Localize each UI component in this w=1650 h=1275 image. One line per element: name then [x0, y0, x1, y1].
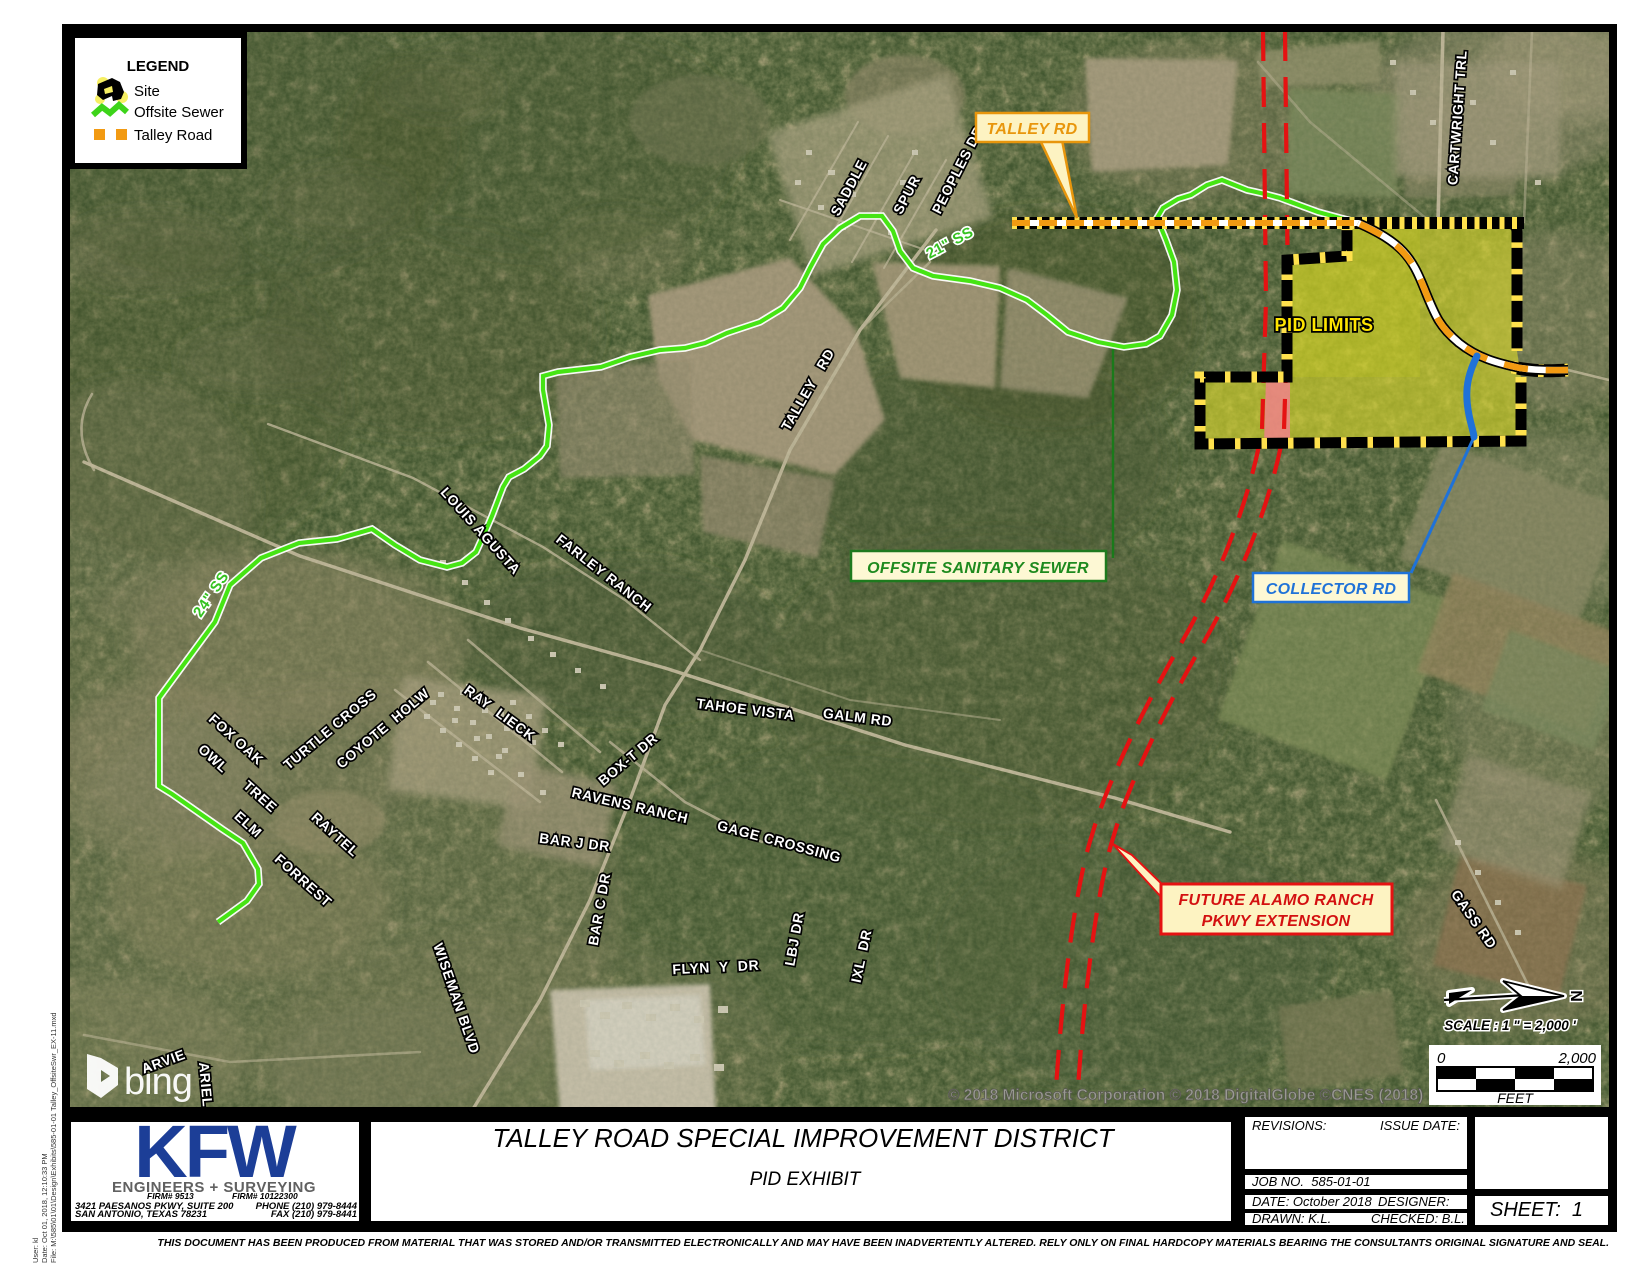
svg-text:FUTURE ALAMO RANCH: FUTURE ALAMO RANCH	[1178, 892, 1373, 909]
svg-text:TALLEY ROAD SPECIAL IMPROVEMEN: TALLEY ROAD SPECIAL IMPROVEMENT DISTRICT	[492, 1123, 1115, 1153]
svg-text:TALLEY RD: TALLEY RD	[987, 121, 1078, 138]
svg-text:DESIGNER:: DESIGNER:	[1378, 1194, 1450, 1209]
svg-text:Site: Site	[134, 83, 160, 100]
svg-text:FIRM# 9513: FIRM# 9513	[147, 1191, 194, 1201]
svg-text:Date: Oct 01, 2018, 12:10:33 P: Date: Oct 01, 2018, 12:10:33 PM	[40, 1153, 49, 1263]
svg-text:© 2018 Microsoft Corporation ©: © 2018 Microsoft Corporation © 2018 Digi…	[948, 1087, 1423, 1104]
svg-text:FAX (210) 979-8441: FAX (210) 979-8441	[271, 1209, 357, 1220]
svg-text:PID EXHIBIT: PID EXHIBIT	[750, 1169, 862, 1190]
svg-text:THIS DOCUMENT HAS BEEN PRODUCE: THIS DOCUMENT HAS BEEN PRODUCED FROM MAT…	[157, 1237, 1609, 1249]
svg-text:LEGEND: LEGEND	[127, 58, 190, 75]
svg-text:SHEET: 1: SHEET: 1	[1490, 1199, 1583, 1221]
svg-text:0: 0	[1437, 1050, 1446, 1067]
svg-text:2,000: 2,000	[1557, 1050, 1596, 1067]
svg-text:FIRM# 10122300: FIRM# 10122300	[232, 1191, 298, 1201]
svg-text:PKWY EXTENSION: PKWY EXTENSION	[1202, 913, 1351, 930]
svg-text:DRAWN: K.L.: DRAWN: K.L.	[1252, 1211, 1331, 1226]
svg-text:COLLECTOR RD: COLLECTOR RD	[1266, 581, 1397, 598]
svg-text:File: M:\585\01\01\Design\Exhi: File: M:\585\01\01\Design\Exhibits\585-0…	[49, 1012, 58, 1263]
svg-text:ISSUE DATE:: ISSUE DATE:	[1380, 1118, 1460, 1133]
svg-text:Talley Road: Talley Road	[134, 127, 212, 144]
svg-text:SCALE : 1 " = 2,000 ': SCALE : 1 " = 2,000 '	[1444, 1018, 1576, 1033]
svg-text:bing: bing	[124, 1061, 192, 1103]
svg-text:REVISIONS:: REVISIONS:	[1252, 1118, 1327, 1133]
svg-text:SAN ANTONIO, TEXAS 78231: SAN ANTONIO, TEXAS 78231	[75, 1209, 207, 1220]
svg-text:User: kl: User: kl	[31, 1237, 40, 1263]
svg-text:CHECKED: B.L.: CHECKED: B.L.	[1371, 1211, 1465, 1226]
svg-text:DATE: October 2018: DATE: October 2018	[1252, 1194, 1372, 1209]
svg-text:OFFSITE SANITARY SEWER: OFFSITE SANITARY SEWER	[867, 560, 1089, 577]
svg-text:N: N	[1567, 990, 1584, 1002]
svg-text:PID LIMITS: PID LIMITS	[1275, 315, 1374, 335]
svg-text:JOB NO. 585-01-01: JOB NO. 585-01-01	[1251, 1174, 1371, 1189]
svg-text:Offsite Sewer: Offsite Sewer	[134, 104, 224, 121]
svg-text:FEET: FEET	[1497, 1090, 1534, 1106]
